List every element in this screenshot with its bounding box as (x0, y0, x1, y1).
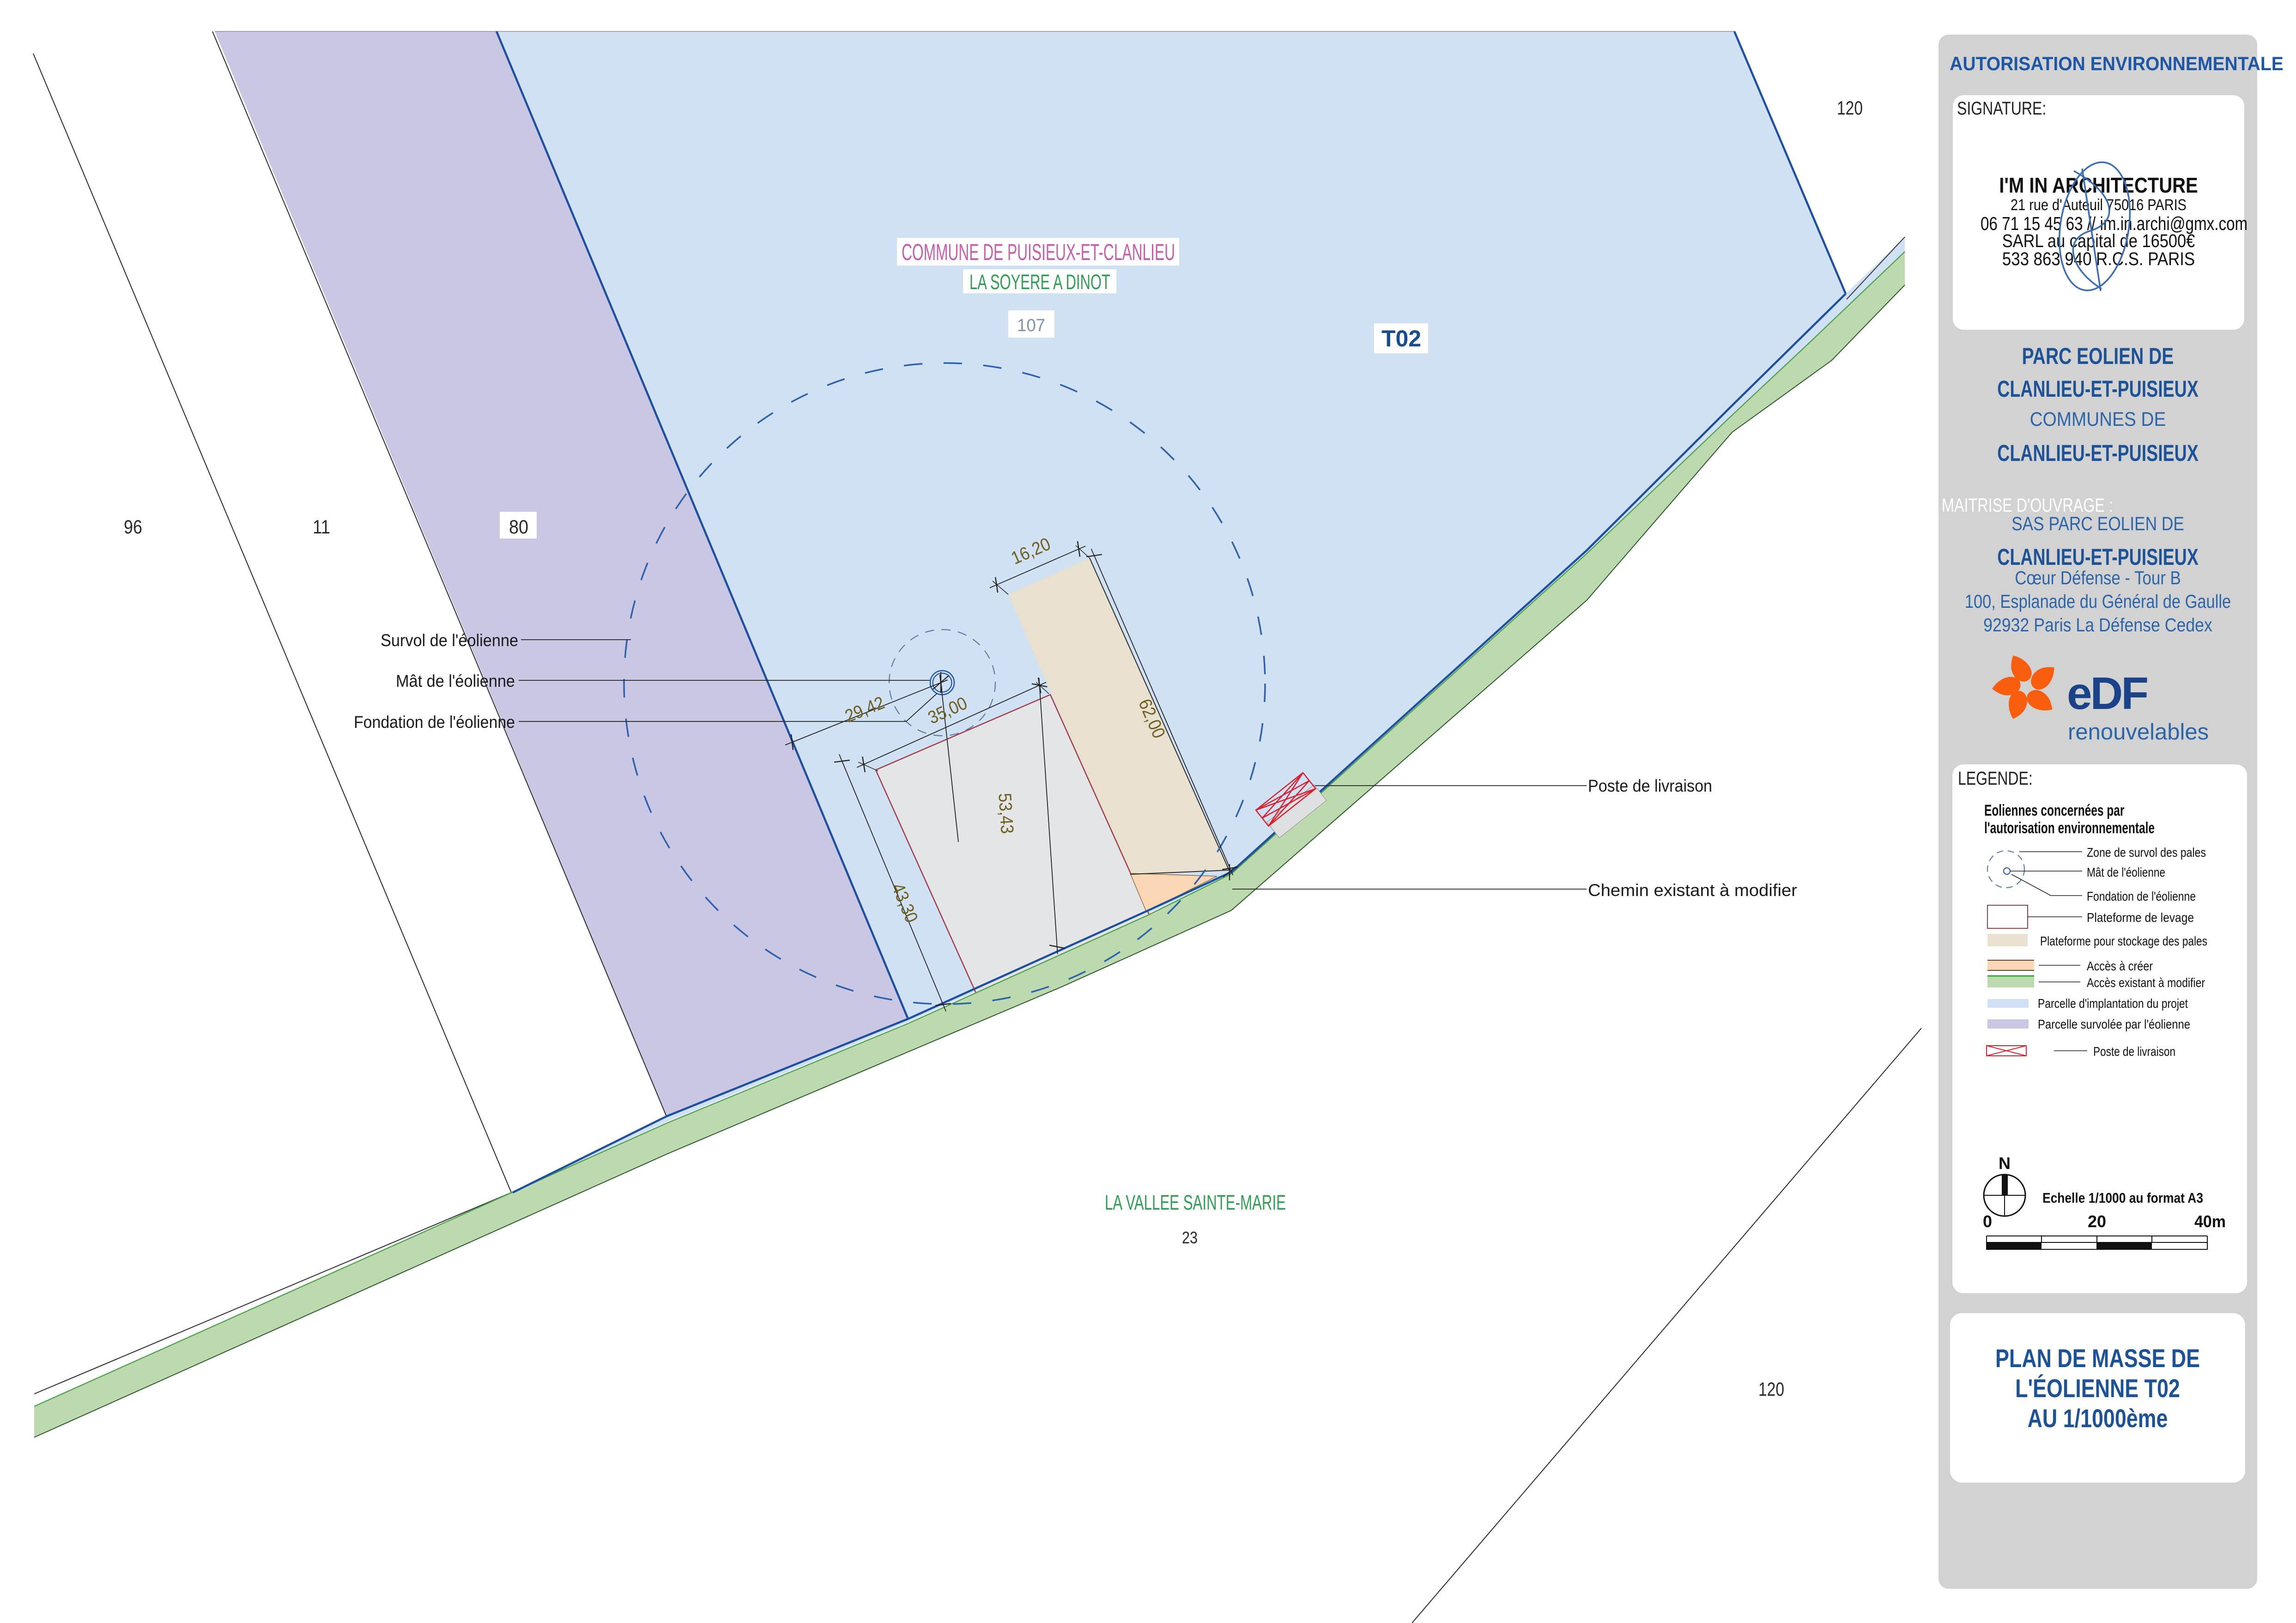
svg-text:80: 80 (509, 516, 528, 538)
svg-text:53,43: 53,43 (994, 793, 1017, 835)
svg-text:Fondation de l'éolienne: Fondation de l'éolienne (354, 713, 515, 732)
svg-text:Mât de l'éolienne: Mât de l'éolienne (396, 672, 515, 690)
svg-text:Fondation de l'éolienne: Fondation de l'éolienne (2087, 889, 2196, 903)
svg-text:Poste de livraison: Poste de livraison (1588, 776, 1712, 795)
svg-text:11: 11 (313, 516, 330, 538)
svg-text:Accès existant à modifier: Accès existant à modifier (2087, 975, 2205, 990)
svg-text:Zone de survol des pales: Zone de survol des pales (2087, 845, 2206, 860)
svg-text:Chemin existant à modifier: Chemin existant à modifier (1588, 881, 1797, 900)
svg-text:Parcelle survolée par l'éolien: Parcelle survolée par l'éolienne (2038, 1017, 2190, 1031)
svg-text:Mât de l'éolienne: Mât de l'éolienne (2087, 865, 2165, 879)
svg-text:T02: T02 (1381, 326, 1421, 351)
svg-text:Parcelle d'implantation du pro: Parcelle d'implantation du projet (2038, 996, 2188, 1011)
svg-text:Plateforme de levage: Plateforme de levage (2087, 910, 2194, 925)
svg-text:96: 96 (124, 516, 142, 538)
svg-text:Plateforme pour stockage des p: Plateforme pour stockage des pales (2040, 934, 2207, 948)
svg-text:0: 0 (1983, 1212, 1992, 1231)
svg-text:20: 20 (2088, 1212, 2106, 1231)
svg-text:120: 120 (1837, 97, 1863, 119)
svg-text:23: 23 (1182, 1228, 1198, 1247)
svg-text:Survol de l'éolienne: Survol de l'éolienne (381, 631, 518, 650)
svg-text:COMMUNE DE PUISIEUX-ET-CLANLIE: COMMUNE DE PUISIEUX-ET-CLANLIEU (902, 239, 1175, 265)
svg-text:LA VALLEE SAINTE-MARIE: LA VALLEE SAINTE-MARIE (1105, 1191, 1286, 1214)
svg-text:LA SOYERE A DINOT: LA SOYERE A DINOT (969, 270, 1110, 294)
svg-text:40m: 40m (2194, 1212, 2226, 1231)
svg-text:eDF: eDF (2067, 668, 2147, 719)
svg-text:Poste de livraison: Poste de livraison (2093, 1044, 2175, 1059)
svg-text:Accès à créer: Accès à créer (2087, 959, 2153, 973)
svg-text:N: N (1999, 1154, 2011, 1173)
svg-text:renouvelables: renouvelables (2068, 720, 2209, 745)
svg-text:Echelle 1/1000 au format A3: Echelle 1/1000 au format A3 (2042, 1190, 2203, 1206)
svg-text:107: 107 (1017, 316, 1045, 335)
svg-text:120: 120 (1758, 1378, 1784, 1400)
